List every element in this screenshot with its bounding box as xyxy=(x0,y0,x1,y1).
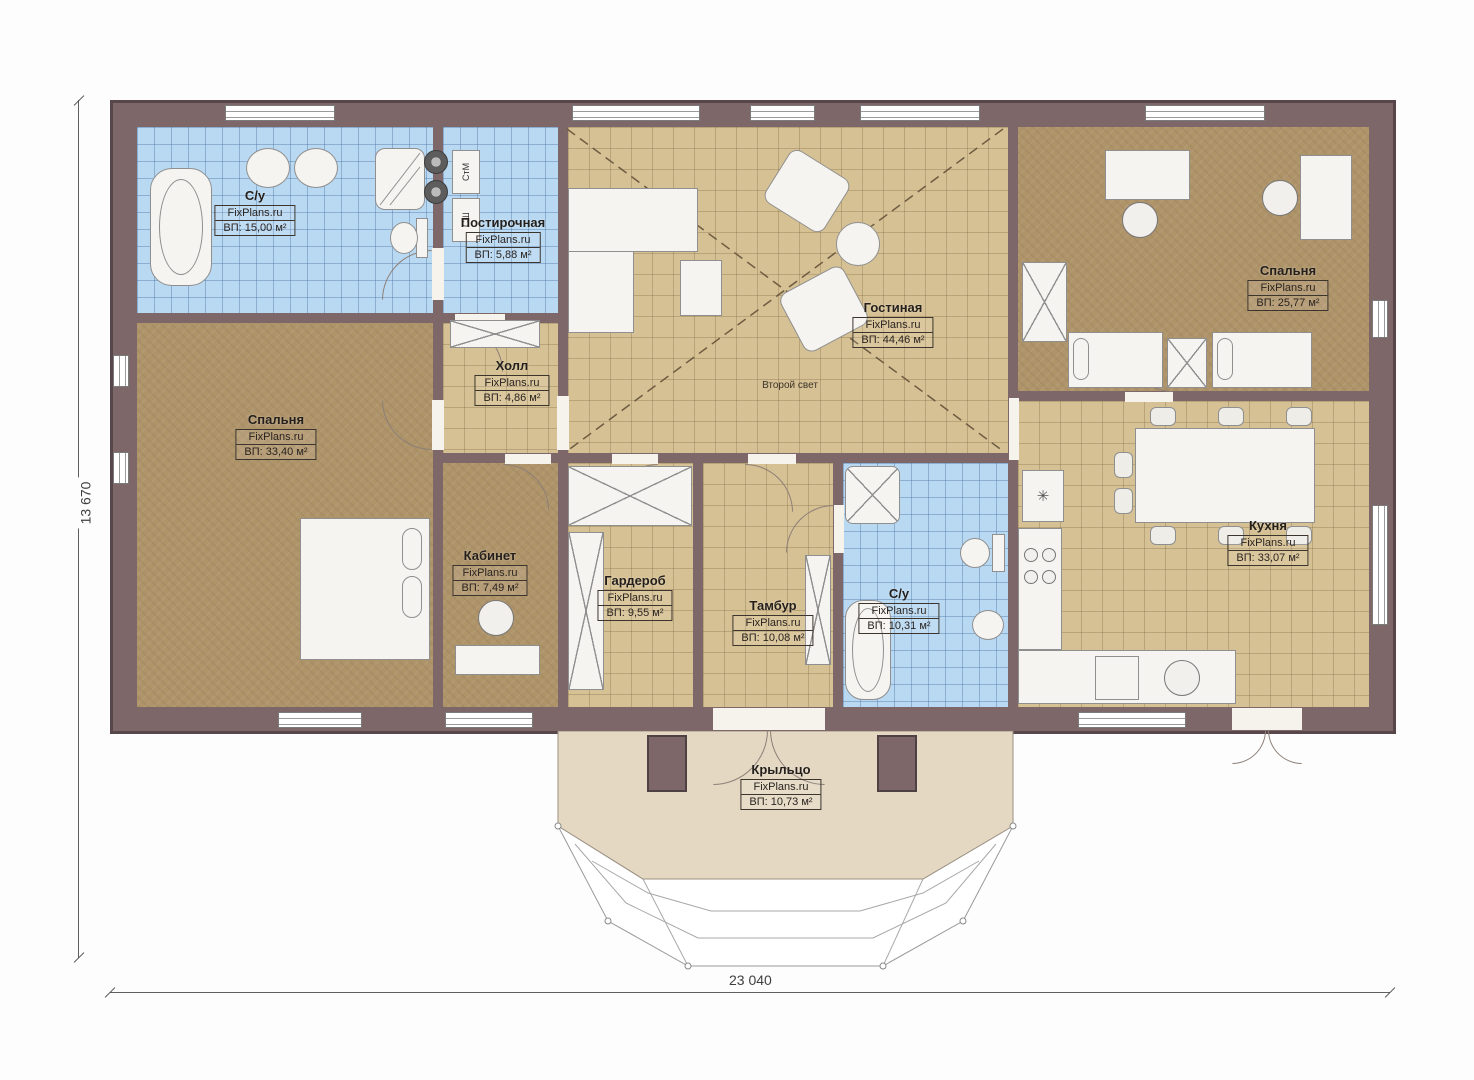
room-area: ВП: 5,88 м² xyxy=(466,248,539,262)
sink-basin xyxy=(246,148,290,188)
room-name: Спальня xyxy=(235,412,316,427)
room-info-box: FixPlans.ru ВП: 15,00 м² xyxy=(214,205,295,236)
brand-watermark: FixPlans.ru xyxy=(466,233,539,248)
room-label-tambour: Тамбур FixPlans.ru ВП: 10,08 м² xyxy=(732,598,813,646)
dryer-drum xyxy=(424,180,448,204)
room-info-box: FixPlans.ru ВП: 4,86 м² xyxy=(474,375,549,406)
room-name: Постирочная xyxy=(461,215,545,230)
window xyxy=(750,105,815,121)
window xyxy=(1372,505,1388,625)
room-area: ВП: 44,46 м² xyxy=(853,333,932,347)
shower-cabin xyxy=(845,466,900,524)
wardrobe-cabinet xyxy=(1022,262,1067,342)
room-label-bedroom-right: Спальня FixPlans.ru ВП: 25,77 м² xyxy=(1247,263,1328,311)
hall-cabinet xyxy=(450,320,540,348)
door-opening xyxy=(505,454,551,464)
room-area: ВП: 10,73 м² xyxy=(741,795,820,809)
brand-watermark: FixPlans.ru xyxy=(598,591,671,606)
dining-table xyxy=(1135,428,1315,523)
stove-burner xyxy=(1042,570,1056,584)
door-swing xyxy=(1268,730,1302,764)
room-info-box: FixPlans.ru ВП: 10,31 м² xyxy=(858,603,939,634)
dining-chair xyxy=(1150,526,1176,545)
room-label-living: Гостиная FixPlans.ru ВП: 44,46 м² xyxy=(852,300,933,348)
coffee-table xyxy=(680,260,722,316)
window xyxy=(278,712,362,728)
room-label-wardrobe: Гардероб FixPlans.ru ВП: 9,55 м² xyxy=(597,573,672,621)
room-area: ВП: 10,31 м² xyxy=(859,619,938,633)
room-label-kitchen: Кухня FixPlans.ru ВП: 33,07 м² xyxy=(1227,518,1308,566)
sink-basin xyxy=(294,148,338,188)
room-label-bathroom-1: С/у FixPlans.ru ВП: 15,00 м² xyxy=(214,188,295,236)
brand-watermark: FixPlans.ru xyxy=(733,616,812,631)
room-name: Спальня xyxy=(1247,263,1328,278)
room-name: Кабинет xyxy=(452,548,527,563)
fridge: ✳ xyxy=(1022,470,1064,522)
shower-cabin xyxy=(375,148,425,210)
opening-kitchen-living xyxy=(1009,398,1019,460)
desk xyxy=(455,645,540,675)
window xyxy=(572,105,700,121)
door-opening xyxy=(432,400,444,450)
room-name: С/у xyxy=(214,188,295,203)
office-chair xyxy=(1262,180,1298,216)
room-name: Тамбур xyxy=(732,598,813,613)
room-area: ВП: 4,86 м² xyxy=(475,391,548,405)
desk xyxy=(1105,150,1190,200)
door-swing xyxy=(1232,730,1266,764)
room-area: ВП: 33,07 м² xyxy=(1228,551,1307,565)
room-info-box: FixPlans.ru ВП: 33,40 м² xyxy=(235,429,316,460)
brand-watermark: FixPlans.ru xyxy=(215,206,294,221)
window xyxy=(113,355,129,387)
room-label-bathroom-2: С/у FixPlans.ru ВП: 10,31 м² xyxy=(858,586,939,634)
pillow xyxy=(1073,338,1089,380)
room-label-porch: Крыльцо FixPlans.ru ВП: 10,73 м² xyxy=(740,762,821,810)
stove-burner xyxy=(1042,548,1056,562)
window xyxy=(1078,712,1186,728)
window xyxy=(1372,300,1388,338)
door-opening xyxy=(748,454,796,464)
office-chair xyxy=(1122,202,1158,238)
window xyxy=(1145,105,1265,121)
kitchen-counter xyxy=(1018,528,1062,650)
door-opening xyxy=(612,454,658,464)
sofa-section xyxy=(568,188,698,252)
door-opening xyxy=(557,396,569,450)
door-opening xyxy=(1125,392,1173,402)
window xyxy=(860,105,980,121)
room-name: Кухня xyxy=(1227,518,1308,533)
toilet-bowl xyxy=(960,538,990,568)
wardrobe-cabinet xyxy=(568,466,692,526)
kitchen-sink xyxy=(1164,660,1200,696)
room-area: ВП: 15,00 м² xyxy=(215,221,294,235)
washer-drum xyxy=(424,150,448,174)
room-area: ВП: 7,49 м² xyxy=(453,581,526,595)
washing-machine: СтМ xyxy=(452,150,480,194)
brand-watermark: FixPlans.ru xyxy=(741,780,820,795)
dining-chair xyxy=(1286,407,1312,426)
window xyxy=(113,452,129,484)
second-light-note: Второй свет xyxy=(762,380,818,391)
brand-watermark: FixPlans.ru xyxy=(859,604,938,619)
stove-burner xyxy=(1024,570,1038,584)
dining-chair xyxy=(1114,452,1133,478)
room-name: Гардероб xyxy=(597,573,672,588)
floor-plan-page: { "plan": { "brand": "FixPlans.ru", "dim… xyxy=(0,0,1474,1080)
room-label-office: Кабинет FixPlans.ru ВП: 7,49 м² xyxy=(452,548,527,596)
brand-watermark: FixPlans.ru xyxy=(453,566,526,581)
brand-watermark: FixPlans.ru xyxy=(475,376,548,391)
brand-watermark: FixPlans.ru xyxy=(236,430,315,445)
room-info-box: FixPlans.ru ВП: 10,08 м² xyxy=(732,615,813,646)
door-opening xyxy=(834,505,844,553)
room-info-box: FixPlans.ru ВП: 7,49 м² xyxy=(452,565,527,596)
office-chair xyxy=(478,600,514,636)
room-info-box: FixPlans.ru ВП: 44,46 м² xyxy=(852,317,933,348)
room-label-bedroom-left: Спальня FixPlans.ru ВП: 33,40 м² xyxy=(235,412,316,460)
sink-basin xyxy=(972,610,1004,640)
window xyxy=(225,105,335,121)
bathtub-basin xyxy=(159,179,203,275)
washer-label: СтМ xyxy=(461,163,471,181)
stove-burner xyxy=(1024,548,1038,562)
toilet-tank xyxy=(992,534,1005,572)
kitchen-door-opening xyxy=(1232,708,1302,730)
room-info-box: FixPlans.ru ВП: 5,88 м² xyxy=(465,232,540,263)
room-info-box: FixPlans.ru ВП: 9,55 м² xyxy=(597,590,672,621)
dining-chair xyxy=(1218,407,1244,426)
dining-chair xyxy=(1150,407,1176,426)
oven xyxy=(1095,656,1139,700)
room-name: С/у xyxy=(858,586,939,601)
door-opening xyxy=(432,248,444,300)
room-area: ВП: 9,55 м² xyxy=(598,606,671,620)
nightstand xyxy=(1167,338,1207,388)
dining-chair xyxy=(1114,488,1133,514)
room-name: Холл xyxy=(474,358,549,373)
brand-watermark: FixPlans.ru xyxy=(853,318,932,333)
room-name: Гостиная xyxy=(852,300,933,315)
desk xyxy=(1300,155,1352,240)
fridge-snowflake-icon: ✳ xyxy=(1037,487,1050,505)
room-label-hall: Холл FixPlans.ru ВП: 4,86 м² xyxy=(474,358,549,406)
entrance-door-opening xyxy=(713,708,825,730)
round-table xyxy=(836,222,880,266)
room-area: ВП: 10,08 м² xyxy=(733,631,812,645)
dimension-tick xyxy=(74,95,85,106)
dimension-line-left xyxy=(78,100,79,958)
room-name: Крыльцо xyxy=(740,762,821,777)
room-area: ВП: 33,40 м² xyxy=(236,445,315,459)
window xyxy=(445,712,533,728)
dimension-label-left: 13 670 xyxy=(77,478,93,529)
room-info-box: FixPlans.ru ВП: 25,77 м² xyxy=(1247,280,1328,311)
brand-watermark: FixPlans.ru xyxy=(1228,536,1307,551)
brand-watermark: FixPlans.ru xyxy=(1248,281,1327,296)
room-info-box: FixPlans.ru ВП: 33,07 м² xyxy=(1227,535,1308,566)
pillow xyxy=(1217,338,1233,380)
toilet-bowl xyxy=(390,222,418,254)
room-label-laundry: Постирочная FixPlans.ru ВП: 5,88 м² xyxy=(461,215,545,263)
room-area: ВП: 25,77 м² xyxy=(1248,296,1327,310)
pillow xyxy=(402,576,422,618)
dimension-line-bottom xyxy=(110,992,1390,993)
room-info-box: FixPlans.ru ВП: 10,73 м² xyxy=(740,779,821,810)
dimension-tick xyxy=(74,952,85,963)
pillow xyxy=(402,528,422,570)
